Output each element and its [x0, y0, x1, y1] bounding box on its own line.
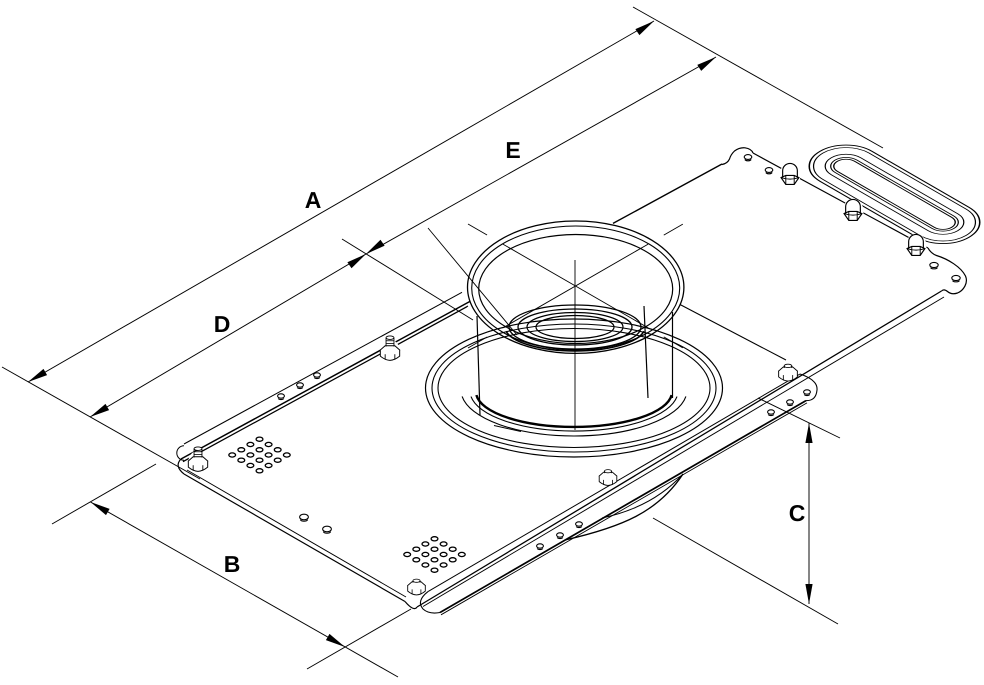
svg-text:B: B: [224, 551, 241, 577]
svg-text:C: C: [789, 500, 806, 526]
svg-text:A: A: [305, 187, 322, 213]
svg-text:E: E: [505, 137, 520, 163]
svg-text:D: D: [214, 311, 231, 337]
